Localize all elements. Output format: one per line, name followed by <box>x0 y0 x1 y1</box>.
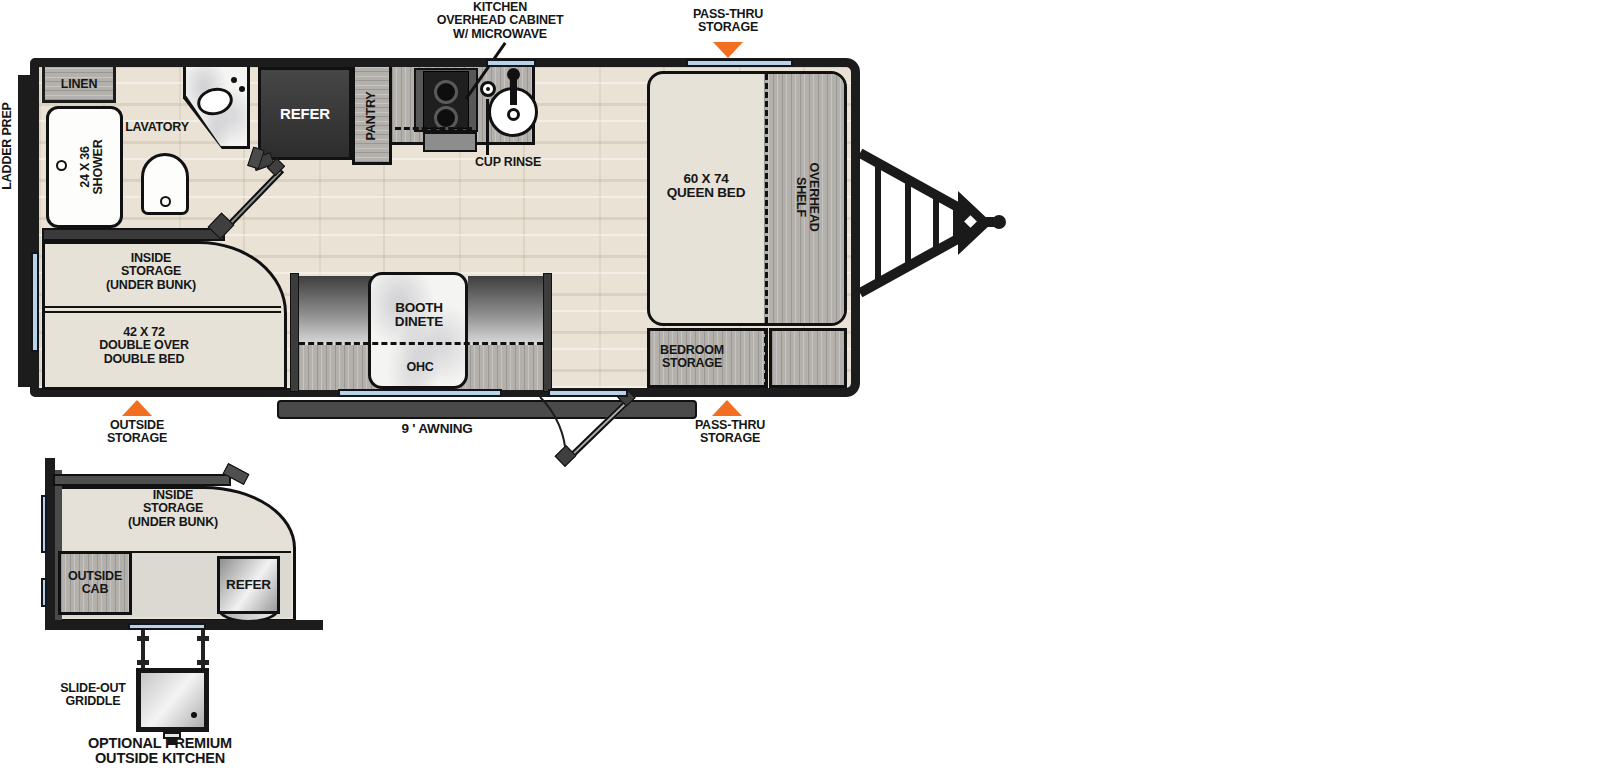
pass-thru-top-label: PASS-THRU STORAGE <box>693 8 763 35</box>
inset-caption: OPTIONAL PREMIUM OUTSIDE KITCHEN <box>88 736 232 767</box>
inset-refer-label: REFER <box>226 578 271 592</box>
bed-dashed-line <box>765 74 768 323</box>
rail-tick-3 <box>137 660 149 665</box>
rail-tick-4 <box>197 660 209 665</box>
slide-out-griddle-label: SLIDE-OUT GRIDDLE <box>60 682 126 709</box>
floorplan-page: LADDER PREP LINEN 24 X 36 SHOWER LAVATOR… <box>0 0 1600 778</box>
bunk-divider <box>45 306 281 313</box>
ohc-label: OHC <box>406 361 433 374</box>
inset-outside-cab: OUTSIDE CAB <box>58 551 132 615</box>
pass-thru-top-arrow <box>713 42 743 58</box>
shower-label: 24 X 36 SHOWER <box>79 139 106 194</box>
cup-rinse-leader <box>486 99 489 155</box>
rail-tick-2 <box>197 636 209 641</box>
queen-bed-label: 60 X 74 QUEEN BED <box>667 172 745 201</box>
pass-thru-bottom-label: PASS-THRU STORAGE <box>695 419 765 446</box>
vanity-faucet-dot2 <box>239 86 245 92</box>
dinette-window <box>338 389 502 397</box>
refer-label: REFER <box>280 106 330 122</box>
dinette-ohc-dashed <box>299 342 543 345</box>
inset-inside-storage-label: INSIDE STORAGE (UNDER BUNK) <box>128 489 218 529</box>
inset-window-1 <box>41 495 47 553</box>
kitchen-window <box>486 59 536 67</box>
bedroom-storage-label: BEDROOM STORAGE <box>660 344 724 371</box>
bathroom-wall <box>42 228 225 241</box>
cup-rinse-label: CUP RINSE <box>475 156 541 169</box>
outside-cab-label: OUTSIDE CAB <box>68 570 122 597</box>
inset-window-2 <box>41 578 47 607</box>
inset-refer: REFER <box>217 556 280 614</box>
entry-door-window <box>548 389 628 397</box>
dinette-post-left <box>290 273 299 392</box>
booth-dinette-label: BOOTH DINETE <box>395 301 443 330</box>
oven-drawer <box>423 132 477 152</box>
bedroom-window <box>686 59 793 67</box>
outside-storage-arrow <box>122 400 152 416</box>
pantry-label: PANTRY <box>365 92 378 141</box>
sink-drain <box>507 108 520 121</box>
refrigerator: REFER <box>258 67 352 160</box>
rear-window <box>31 252 39 352</box>
kitchen-overhead-label: KITCHEN OVERHEAD CABINET W/ MICROWAVE <box>437 1 564 41</box>
overhead-shelf-label: OVERHEAD SHELF <box>794 162 821 231</box>
dinette-post-right <box>543 273 552 392</box>
inset-bottom-window <box>128 623 206 630</box>
outside-storage-label: OUTSIDE STORAGE <box>107 419 167 446</box>
vanity-faucet-dot1 <box>231 77 237 83</box>
inside-storage-label: INSIDE STORAGE (UNDER BUNK) <box>106 252 196 292</box>
hitch-a-frame <box>858 145 1010 301</box>
cup-rinse-dot <box>486 87 490 91</box>
dinette-bench-right <box>468 276 543 345</box>
double-bed-label: 42 X 72 DOUBLE OVER DOUBLE BED <box>99 326 188 366</box>
bedroom-storage-right <box>769 328 847 388</box>
toilet-flush <box>160 196 171 207</box>
inset-bunk-bar <box>53 474 231 486</box>
shower-drain <box>56 160 67 171</box>
ohc-dashed-kitchen <box>395 127 472 130</box>
faucet-bar <box>510 79 517 105</box>
bedroom-storage-dashed <box>764 328 767 388</box>
awning-label: 9 ' AWNING <box>401 422 472 436</box>
linen-label: LINEN <box>61 78 98 91</box>
griddle-dot <box>191 712 197 718</box>
ladder-prep-bar <box>18 75 30 387</box>
griddle <box>136 668 209 732</box>
stove-burner-1 <box>434 80 458 104</box>
pass-thru-bottom-arrow <box>712 400 742 416</box>
ladder-prep-label: LADDER PREP <box>1 70 14 222</box>
lavatory-label: LAVATORY <box>125 121 189 134</box>
rail-tick-1 <box>137 636 149 641</box>
